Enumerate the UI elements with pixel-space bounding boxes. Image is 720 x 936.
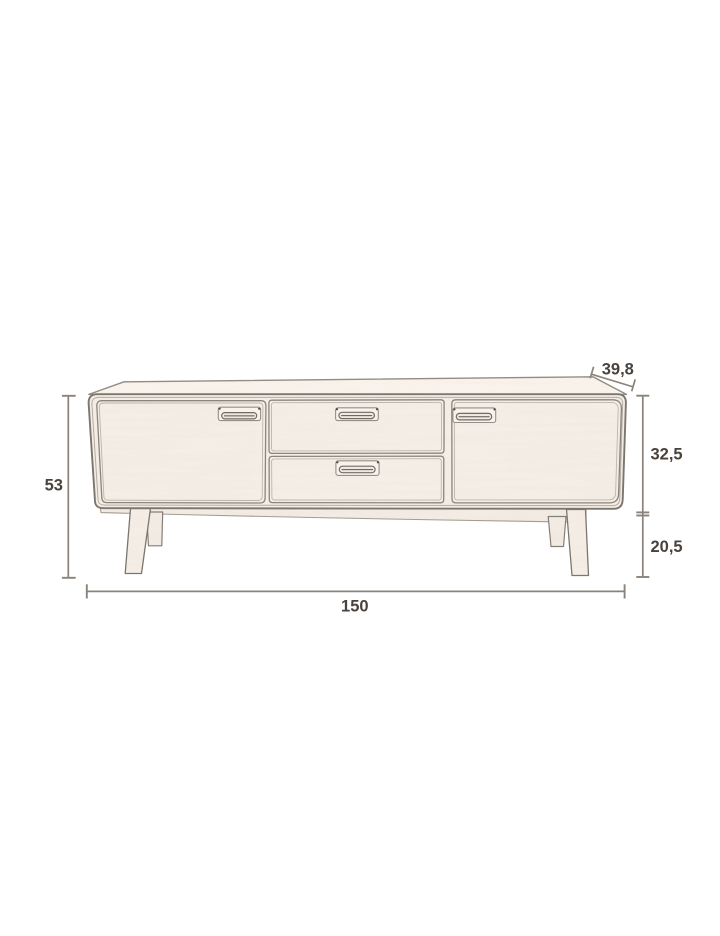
svg-text:39,8: 39,8	[602, 361, 634, 379]
svg-text:32,5: 32,5	[651, 445, 683, 463]
svg-text:20,5: 20,5	[651, 538, 683, 556]
svg-text:53: 53	[45, 477, 63, 495]
svg-text:150: 150	[341, 598, 369, 616]
